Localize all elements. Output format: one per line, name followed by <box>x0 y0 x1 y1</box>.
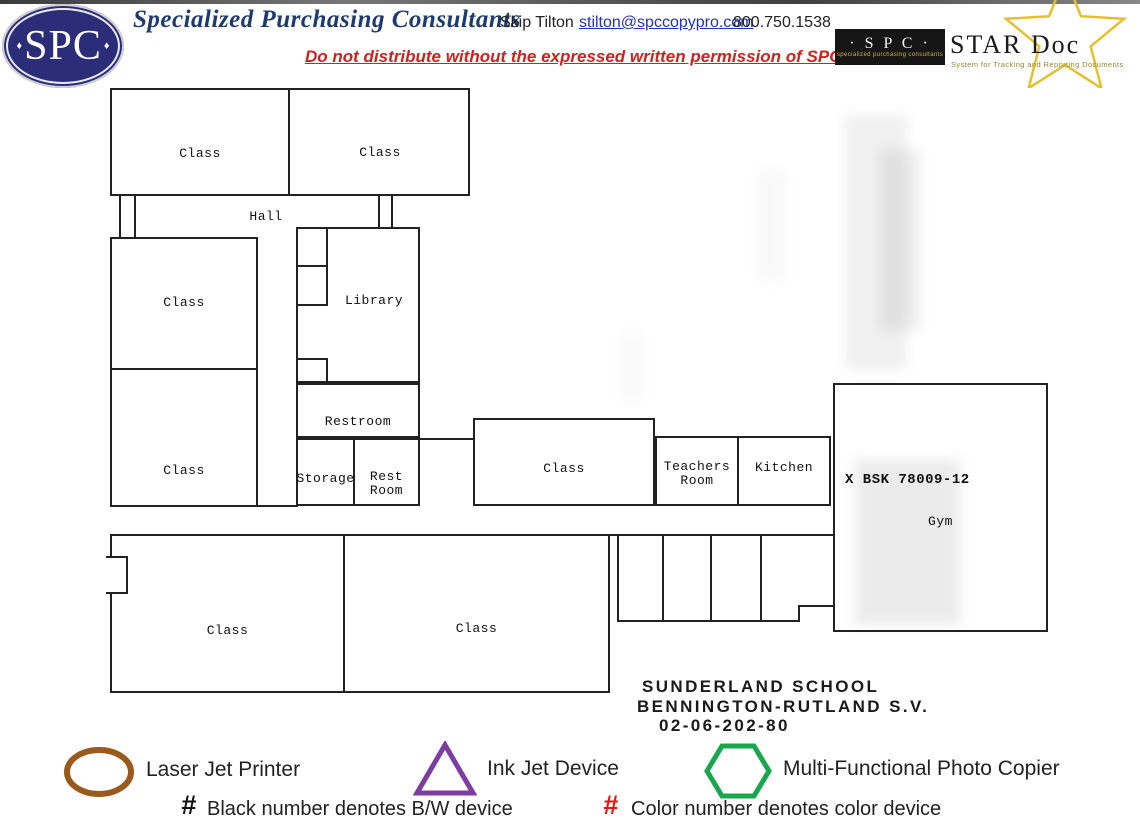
wall-notch <box>106 556 128 594</box>
room-label-kitchen: Kitchen <box>737 461 831 475</box>
spc-logo: ♦ SPC ♦ <box>2 4 124 88</box>
wall <box>662 534 664 620</box>
district-name: BENNINGTON-RUTLAND S.V. <box>637 697 929 717</box>
wall <box>760 534 762 620</box>
site-number: 02-06-202-80 <box>659 716 790 736</box>
company-name: Specialized Purchasing Consultants <box>133 6 521 34</box>
room-label-class: Class <box>343 622 610 636</box>
scan-smudge <box>880 150 920 330</box>
scan-smudge <box>758 170 784 280</box>
room-label-storage: Storage <box>296 472 355 486</box>
device-code-label: X BSK 78009-12 <box>845 473 975 487</box>
wall <box>617 534 619 620</box>
stardoc-title: STAR Doc <box>950 30 1080 60</box>
room-label-restroom2: RestRoom <box>353 470 420 498</box>
stardoc-logo: · S P C · specialized purchasing consult… <box>810 0 1140 88</box>
room-label-class: Class <box>473 462 655 476</box>
library-alcove <box>296 265 328 306</box>
label-line: Room <box>370 483 403 498</box>
room-label-library: Library <box>328 294 420 308</box>
wall <box>258 505 298 507</box>
room-restroom-outline <box>296 383 420 438</box>
wall <box>617 620 800 622</box>
legend-label-ink-jet: Ink Jet Device <box>487 757 619 781</box>
school-name: SUNDERLAND SCHOOL <box>642 677 879 697</box>
distribution-notice: Do not distribute without the expressed … <box>305 47 842 67</box>
diamond-icon: ♦ <box>17 40 23 52</box>
stardoc-spc-text: · S P C · <box>849 35 931 52</box>
contact-name: Skip Tilton <box>500 14 574 32</box>
room-class-bottom-middle-outline <box>343 534 610 693</box>
legend-note-bw: Black number denotes B/W device <box>207 798 513 821</box>
wall <box>110 368 258 370</box>
wall <box>288 88 290 196</box>
room-label-restroom: Restroom <box>296 415 420 429</box>
room-class-top-left-outline <box>110 88 470 196</box>
room-label-class: Class <box>110 296 258 310</box>
room-label-class: Class <box>110 464 258 478</box>
scan-smudge <box>845 115 907 370</box>
label-line: Room <box>680 473 713 488</box>
legend-label-copier: Multi-Functional Photo Copier <box>783 757 1060 781</box>
label-line: Rest <box>370 469 403 484</box>
black-hash-symbol: # <box>181 790 196 821</box>
wall <box>798 605 833 607</box>
room-class-bottom-left-outline <box>110 534 345 693</box>
red-hash-symbol: # <box>603 790 618 821</box>
room-label-teachers: TeachersRoom <box>655 460 739 488</box>
wall <box>798 605 800 620</box>
spc-logo-text: SPC <box>24 22 102 70</box>
room-label-class: Class <box>290 146 470 160</box>
stardoc-spc-box: · S P C · specialized purchasing consult… <box>835 29 945 65</box>
wall <box>420 438 475 440</box>
room-label-hall: Hall <box>246 210 286 224</box>
hall-connector <box>378 194 393 229</box>
wall <box>710 534 712 620</box>
room-gym-outline <box>833 383 1048 632</box>
stardoc-tagline: System for Tracking and Reporting Docume… <box>951 60 1124 69</box>
library-alcove <box>296 227 328 267</box>
label-line: Teachers <box>664 459 730 474</box>
room-label-class: Class <box>110 147 290 161</box>
hall-connector <box>119 194 136 237</box>
ink-jet-device-icon <box>413 741 477 797</box>
contact-email-link[interactable]: stilton@spccopypro.com <box>579 14 754 32</box>
laser-jet-printer-icon <box>63 746 135 798</box>
scan-smudge <box>625 330 639 400</box>
diamond-icon: ♦ <box>104 40 110 52</box>
stardoc-spc-subtext: specialized purchasing consultants <box>837 52 943 59</box>
room-label-class: Class <box>110 624 345 638</box>
scanned-floorplan-page: ♦ SPC ♦ Specialized Purchasing Consultan… <box>0 0 1140 828</box>
library-alcove <box>296 358 328 383</box>
legend-note-color: Color number denotes color device <box>631 798 941 821</box>
legend-label-laser-jet: Laser Jet Printer <box>146 758 300 782</box>
multifunction-copier-icon <box>704 742 772 800</box>
room-label-gym: Gym <box>833 515 1048 529</box>
